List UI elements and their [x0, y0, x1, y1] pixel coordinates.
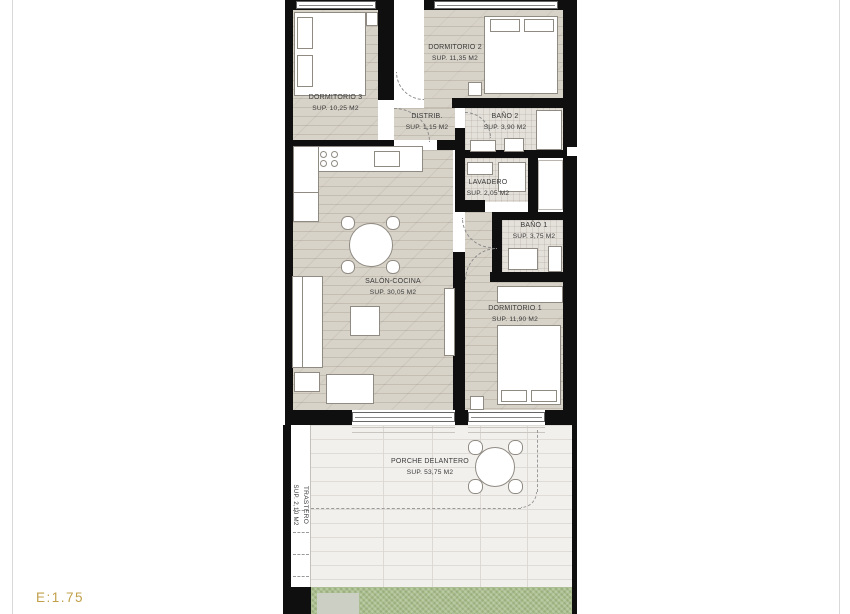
nightstand-symbol [468, 82, 482, 96]
wall-bano1-bottom [490, 272, 567, 282]
coffee-table-symbol [350, 306, 380, 336]
wall-dorm3-corridor [378, 8, 394, 100]
chair-symbol [386, 216, 400, 230]
side-table-symbol [294, 372, 320, 392]
trastero-shelf [293, 554, 309, 555]
room-name: TRASTERO [300, 470, 310, 540]
wall-lavadero-right [528, 158, 538, 212]
room-name: DORMITORIO 1 [470, 304, 560, 315]
wall-porch-right [572, 420, 577, 614]
room-area: SUP. 2,05 M2 [455, 189, 521, 199]
room-label-bano-2: BAÑO 2 SUP. 3,90 M2 [470, 112, 540, 133]
wall-under-dorm2 [452, 98, 565, 108]
window-mullion [437, 5, 555, 6]
chair-symbol [508, 440, 523, 455]
room-name: BAÑO 1 [502, 221, 566, 232]
pillow-symbol [531, 390, 557, 402]
chair-symbol [341, 260, 355, 274]
room-area: SUP. 11,35 M2 [400, 54, 510, 64]
chair-symbol [508, 479, 523, 494]
window-dorm1-porch [468, 412, 545, 422]
floor-duct-shaft [538, 160, 563, 210]
sofa-symbol [292, 276, 323, 368]
pillow-symbol [490, 19, 520, 32]
page-border-left [12, 0, 13, 614]
porch-tile-joint [383, 425, 384, 587]
trastero-shelf [293, 576, 309, 577]
burner [331, 151, 338, 158]
scale-annotation: E:1.75 [36, 590, 84, 605]
shower-symbol [548, 246, 562, 272]
pillow-symbol [501, 390, 527, 402]
room-label-porche: PORCHE DELANTERO SUP. 53,75 M2 [360, 457, 500, 478]
window-dorm2 [434, 1, 558, 9]
page-border-right [839, 0, 840, 614]
room-area: SUP. 10,25 M2 [293, 104, 378, 114]
window-mullion [355, 417, 452, 418]
toilet-symbol [504, 138, 524, 152]
floorplan-page: { "plan": { "scale_label": "E:1.75", "co… [0, 0, 850, 614]
floor-corridor-opening [424, 98, 452, 108]
stove-symbol [318, 149, 348, 169]
room-name: DORMITORIO 2 [400, 43, 510, 54]
room-name: PORCHE DELANTERO [360, 457, 500, 468]
porch-dashed-boundary [311, 508, 521, 509]
room-area: SUP. 2,10 M2 [291, 470, 300, 540]
room-label-dormitorio-2: DORMITORIO 2 SUP. 11,35 M2 [400, 43, 510, 64]
nightstand-symbol [366, 12, 378, 26]
room-label-salon-cocina: SALÓN-COCINA SUP. 30,05 M2 [338, 277, 448, 298]
wall-right-vent [567, 147, 577, 156]
wardrobe-symbol-dorm1 [497, 286, 563, 303]
room-label-distrib: DISTRIB. SUP. 1,15 M2 [398, 112, 456, 133]
burner [320, 160, 327, 167]
window-mullion [471, 417, 542, 418]
chair-symbol [468, 440, 483, 455]
room-name: SALÓN-COCINA [338, 277, 448, 288]
fridge-symbol [293, 192, 319, 222]
room-label-bano-1: BAÑO 1 SUP. 3,75 M2 [502, 221, 566, 242]
room-area: SUP. 3,75 M2 [502, 232, 566, 242]
pillow-symbol [297, 55, 313, 87]
room-name: DORMITORIO 3 [293, 93, 378, 104]
room-area: SUP. 30,05 M2 [338, 288, 448, 298]
door-arc-dorm2 [396, 72, 424, 100]
chair-symbol [386, 260, 400, 274]
wall-bottom-corner [283, 587, 311, 614]
window-mullion [299, 5, 373, 6]
room-name: DISTRIB. [398, 112, 456, 123]
window-sill [352, 427, 455, 433]
wall-hall-top [455, 200, 485, 212]
wall-bottom-left [285, 410, 352, 425]
pillow-symbol [297, 17, 313, 49]
laundry-counter-symbol [467, 162, 493, 175]
window-salon-porch [352, 412, 455, 422]
porch-tile-joint [432, 425, 433, 587]
tv-bench-symbol [444, 288, 455, 356]
wall-right [563, 0, 577, 420]
room-label-dormitorio-1: DORMITORIO 1 SUP. 11,90 M2 [470, 304, 560, 325]
wall-bano1-top [500, 212, 565, 220]
porch-dashed-boundary-v [537, 430, 538, 492]
burner [331, 160, 338, 167]
room-name: LAVADERO [455, 178, 521, 189]
room-label-trastero: TRASTERO SUP. 2,10 M2 [288, 470, 310, 540]
room-area: SUP. 53,75 M2 [360, 468, 500, 478]
chair-symbol [468, 479, 483, 494]
room-label-lavadero: LAVADERO SUP. 2,05 M2 [455, 178, 521, 199]
floor-porche [311, 425, 572, 587]
chair-symbol [341, 216, 355, 230]
sofa-cushion-line [302, 276, 303, 368]
garden-slab [317, 593, 359, 614]
entry-door-gap [394, 0, 424, 10]
wall-bottom-pier [455, 410, 468, 425]
room-area: SUP. 11,90 M2 [470, 315, 560, 325]
room-name: BAÑO 2 [470, 112, 540, 123]
room-area: SUP. 3,90 M2 [470, 123, 540, 133]
window-dorm3 [296, 1, 376, 9]
washbasin-symbol [508, 248, 538, 270]
window-sill [468, 427, 545, 433]
dining-table-symbol [349, 223, 393, 267]
pillow-symbol [524, 19, 554, 32]
armchair-symbol [326, 374, 374, 404]
sink-symbol [374, 151, 400, 167]
room-label-dormitorio-3: DORMITORIO 3 SUP. 10,25 M2 [293, 93, 378, 114]
room-area: SUP. 1,15 M2 [398, 123, 456, 133]
nightstand-symbol [470, 396, 484, 410]
burner [320, 151, 327, 158]
washbasin-symbol [470, 140, 496, 152]
